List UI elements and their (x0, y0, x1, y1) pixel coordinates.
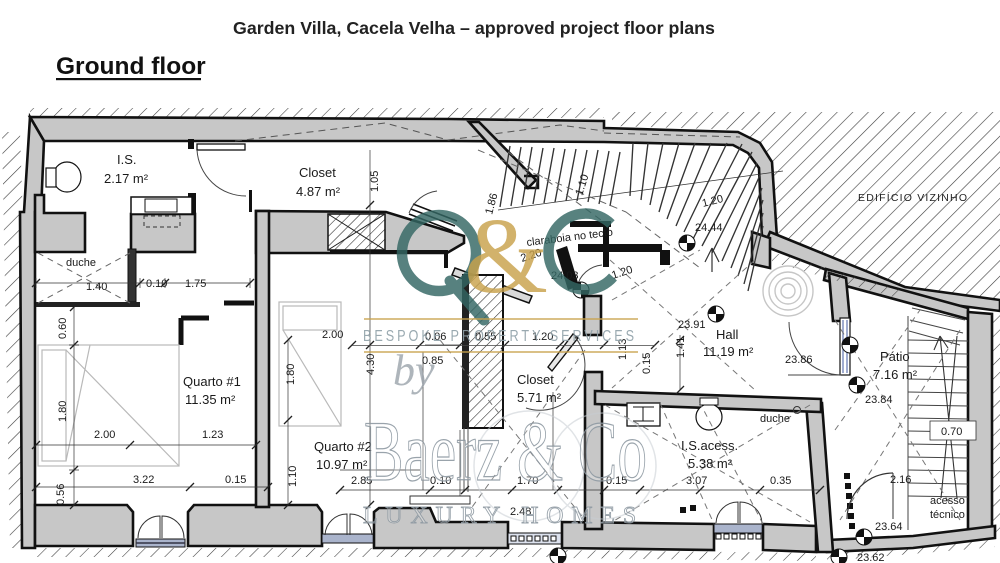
svg-text:11.19 m²: 11.19 m² (703, 344, 754, 359)
svg-text:duche: duche (66, 257, 96, 269)
svg-text:0.70: 0.70 (941, 426, 962, 438)
svg-text:Quarto #1: Quarto #1 (183, 374, 241, 389)
svg-text:I.S.acess.: I.S.acess. (681, 438, 738, 453)
svg-text:23.62: 23.62 (857, 552, 885, 563)
svg-text:técnico: técnico (930, 509, 965, 521)
svg-text:Garden Villa, Cacela Velha – a: Garden Villa, Cacela Velha – approved pr… (233, 18, 715, 38)
svg-text:1.20: 1.20 (701, 193, 725, 210)
svg-text:Pátio: Pátio (880, 349, 910, 364)
svg-text:acesso: acesso (930, 495, 965, 507)
svg-text:23.86: 23.86 (785, 354, 813, 366)
svg-text:1.41: 1.41 (675, 337, 687, 358)
svg-text:0.15: 0.15 (641, 353, 653, 374)
svg-text:1.10: 1.10 (287, 466, 299, 487)
svg-text:Ground floor: Ground floor (56, 53, 206, 80)
svg-text:1.23: 1.23 (202, 429, 223, 441)
svg-text:2.00: 2.00 (94, 429, 115, 441)
svg-text:EDIFÍCIO VIZINHO: EDIFÍCIO VIZINHO (858, 191, 968, 204)
svg-text:10.97 m²: 10.97 m² (316, 457, 368, 472)
svg-text:3.22: 3.22 (133, 474, 154, 486)
svg-text:1.80: 1.80 (57, 401, 69, 422)
svg-text:&: & (464, 197, 548, 316)
svg-text:1.10: 1.10 (573, 173, 591, 197)
svg-text:Hall: Hall (716, 327, 739, 342)
svg-text:5.38 m²: 5.38 m² (688, 456, 733, 471)
svg-text:11.35 m²: 11.35 m² (185, 392, 236, 407)
svg-text:1.40: 1.40 (86, 281, 107, 293)
svg-text:7.16 m²: 7.16 m² (873, 367, 918, 382)
svg-text:2.17 m²: 2.17 m² (104, 171, 149, 186)
svg-text:4.30: 4.30 (365, 354, 377, 375)
svg-text:Closet: Closet (517, 372, 554, 387)
svg-text:2.16: 2.16 (890, 474, 911, 486)
svg-text:23.64: 23.64 (875, 521, 903, 533)
svg-text:23.84: 23.84 (865, 394, 893, 406)
svg-text:23.91: 23.91 (678, 319, 706, 331)
svg-text:by: by (393, 346, 435, 395)
svg-text:duche: duche (760, 413, 790, 425)
svg-text:4.87 m²: 4.87 m² (296, 184, 341, 199)
svg-text:BESPOKE PROPERTY SERVICES: BESPOKE PROPERTY SERVICES (363, 328, 637, 345)
svg-text:0.10: 0.10 (146, 278, 167, 290)
svg-text:24.44: 24.44 (695, 222, 723, 234)
svg-text:0.60: 0.60 (57, 318, 69, 339)
svg-text:0.15: 0.15 (225, 474, 246, 486)
svg-text:I.S.: I.S. (117, 152, 137, 167)
svg-text:LUXURY HOMES: LUXURY HOMES (363, 503, 644, 529)
svg-text:3.07: 3.07 (686, 475, 707, 487)
svg-text:1.80: 1.80 (285, 364, 297, 385)
svg-text:0.35: 0.35 (770, 475, 791, 487)
svg-text:Closet: Closet (299, 165, 336, 180)
svg-text:1.05: 1.05 (369, 171, 381, 192)
svg-text:1.75: 1.75 (185, 278, 206, 290)
svg-text:2.00: 2.00 (322, 329, 343, 341)
svg-text:0.56: 0.56 (55, 484, 67, 505)
svg-text:Baerz & Co: Baerz & Co (364, 403, 647, 499)
